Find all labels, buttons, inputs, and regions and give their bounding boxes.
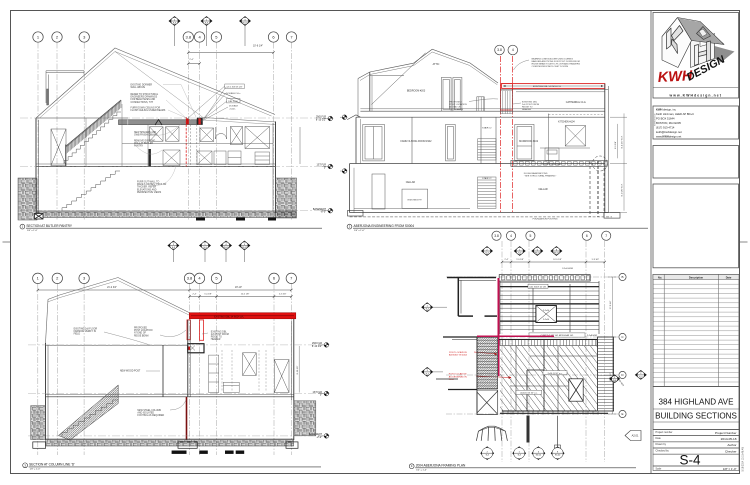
- svg-text:EXISTING F.P.: EXISTING F.P.: [408, 199, 423, 201]
- svg-text:Description: Description: [689, 275, 704, 279]
- svg-text:WALL ABOVE: WALL ABOVE: [131, 86, 146, 89]
- svg-text:ENGINEERS DRAWINGS: ENGINEERS DRAWINGS: [131, 96, 158, 99]
- svg-text:A2.01: A2.01: [632, 434, 639, 438]
- svg-text:EXISTING DBL 14 INCH LVL: EXISTING DBL 14 INCH LVL: [533, 86, 562, 88]
- svg-text:OVER MUDROOM/CLOSET DOORS: OVER MUDROOM/CLOSET DOORS: [532, 66, 569, 68]
- svg-text:S5.02: S5.02: [536, 455, 542, 457]
- svg-text:www.KWHdesign.net: www.KWHdesign.net: [656, 135, 681, 139]
- svg-text:18'-10": 18'-10": [235, 287, 242, 289]
- svg-text:Scale: Scale: [656, 469, 662, 471]
- svg-text:RIDGE BEAM: RIDGE BEAM: [134, 334, 149, 337]
- svg-text:keith@kwhdesign.net: keith@kwhdesign.net: [656, 130, 682, 134]
- svg-text:4: 4: [510, 234, 512, 238]
- svg-text:2-2x8 HDR: 2-2x8 HDR: [562, 268, 573, 270]
- svg-text:5'-3 3/4": 5'-3 3/4": [592, 259, 600, 261]
- svg-text:8'-10 1/2": 8'-10 1/2": [316, 119, 326, 122]
- svg-text:ABERJONA ENGINEERING FROM S000: ABERJONA ENGINEERING FROM S0004: [354, 224, 415, 228]
- svg-text:5'-5 5/8": 5'-5 5/8": [516, 259, 524, 261]
- svg-text:NEW SPACERS AND: NEW SPACERS AND: [134, 131, 157, 134]
- svg-text:Project Number: Project Number: [715, 431, 737, 435]
- svg-text:S5.02: S5.02: [555, 455, 561, 457]
- svg-text:HEADER: HEADER: [522, 108, 532, 111]
- svg-text:8'-1 1/8": 8'-1 1/8": [615, 141, 617, 149]
- svg-text:1/4" = 1'-0": 1/4" = 1'-0": [30, 469, 41, 471]
- svg-text:2-2x10: 2-2x10: [543, 310, 550, 312]
- svg-text:Author: Author: [727, 443, 736, 447]
- svg-text:1/8" = 1'-0": 1/8" = 1'-0": [723, 467, 737, 471]
- svg-text:Drawn by: Drawn by: [656, 443, 667, 446]
- svg-text:5: 5: [529, 234, 531, 238]
- svg-text:3.8: 3.8: [497, 48, 502, 52]
- svg-text:ELEVATIONS AND: ELEVATIONS AND: [137, 188, 157, 191]
- svg-text:AS DESIGNED IN: AS DESIGNED IN: [449, 375, 467, 378]
- svg-text:KITCHEN #104: KITCHEN #104: [558, 121, 575, 124]
- svg-text:8'-0 3/4" V.I.F.: 8'-0 3/4" V.I.F.: [622, 135, 624, 148]
- svg-text:DOUBLE LVLs: DOUBLE LVLs: [226, 93, 241, 95]
- svg-text:3.8: 3.8: [186, 34, 192, 39]
- svg-text:KWH design, inc: KWH design, inc: [656, 108, 677, 112]
- svg-text:STAIR #2: STAIR #2: [482, 177, 492, 180]
- svg-text:3.8: 3.8: [187, 276, 193, 281]
- svg-text:S5.02: S5.02: [535, 252, 541, 254]
- svg-text:ATTIC: ATTIC: [433, 63, 440, 66]
- svg-text:Project number: Project number: [656, 431, 673, 434]
- svg-text:384 HIGHLAND AVE: 384 HIGHLAND AVE: [659, 398, 735, 407]
- svg-text:(2)1 3/4x9 1/2 LVL: (2)1 3/4x9 1/2 LVL: [530, 286, 548, 288]
- svg-text:8'-2 5/8" V.I.F.: 8'-2 5/8" V.I.F.: [622, 183, 624, 196]
- svg-text:2'-4": 2'-4": [505, 259, 509, 261]
- svg-text:MUDROOM #102: MUDROOM #102: [519, 140, 539, 143]
- svg-text:(2)2x10 @ 16" o.c.: (2)2x10 @ 16" o.c.: [520, 392, 538, 394]
- svg-text:5/18/2014 12:15:48 AM: 5/18/2014 12:15:48 AM: [742, 447, 745, 472]
- svg-text:AT END OF: AT END OF: [134, 332, 147, 335]
- svg-text:BUILDING SECTIONS: BUILDING SECTIONS: [655, 411, 737, 420]
- svg-text:DOUBLE: DOUBLE: [229, 106, 239, 108]
- svg-text:REFER TO STRUCTURAL: REFER TO STRUCTURAL: [131, 93, 159, 96]
- svg-text:0": 0": [320, 394, 322, 397]
- svg-text:8'-10 1/2": 8'-10 1/2": [312, 345, 322, 348]
- svg-text:CELLAR: CELLAR: [538, 188, 548, 191]
- svg-text:Checker: Checker: [725, 449, 737, 453]
- svg-text:CONNECTIONS, TYP: CONNECTIONS, TYP: [131, 102, 154, 104]
- svg-text:10'-5 1/8": 10'-5 1/8": [553, 259, 562, 261]
- svg-text:(617) 913-4714: (617) 913-4714: [656, 126, 675, 130]
- svg-text:POST LOCATION: POST LOCATION: [449, 351, 467, 354]
- svg-text:2'-4": 2'-4": [193, 293, 197, 295]
- svg-text:www.KWHdesign.net: www.KWHdesign.net: [669, 93, 722, 97]
- svg-text:FRAMING VERIFY IN: FRAMING VERIFY IN: [74, 330, 97, 333]
- svg-text:-8'-0": -8'-0": [320, 211, 326, 214]
- svg-text:21'-2 3/4": 21'-2 3/4": [107, 287, 117, 289]
- svg-text:AS BUILT IN 2004: AS BUILT IN 2004: [449, 354, 468, 357]
- svg-text:Date: Date: [656, 437, 662, 440]
- svg-text:10'-5 1/8": 10'-5 1/8": [241, 293, 250, 295]
- svg-text:6: 6: [586, 234, 588, 238]
- svg-text:7,8 20D S 16 16T N/A: 7,8 20D S 16 16T N/A: [542, 163, 561, 166]
- svg-text:Checked by: Checked by: [656, 449, 670, 452]
- svg-text:4: 4: [512, 48, 514, 52]
- svg-text:BEDROOM #203: BEDROOM #203: [407, 90, 426, 93]
- svg-text:POST LOCATION: POST LOCATION: [449, 373, 467, 376]
- svg-text:STAIR #2: STAIR #2: [482, 126, 492, 129]
- svg-text:3.8: 3.8: [494, 234, 499, 238]
- svg-text:B: B: [621, 275, 623, 279]
- svg-text:PO BOX 51644: PO BOX 51644: [656, 117, 675, 121]
- svg-text:RIDGE BEAM: RIDGE BEAM: [449, 108, 463, 111]
- svg-text:FOOTING AS REQUIRED: FOOTING AS REQUIRED: [137, 414, 164, 417]
- svg-text:HEADER: HEADER: [211, 338, 221, 341]
- svg-text:8'-10 1/2": 8'-10 1/2": [297, 365, 299, 374]
- svg-text:BOSTON, MA 02205: BOSTON, MA 02205: [656, 121, 681, 125]
- svg-text:7: 7: [605, 234, 607, 238]
- svg-text:5'-3 3/4": 5'-3 3/4": [279, 293, 287, 295]
- svg-text:NEW WOOD POST: NEW WOOD POST: [120, 371, 141, 373]
- svg-text:No.: No.: [658, 275, 662, 279]
- svg-text:SECTION AT BUTLER PANTRY: SECTION AT BUTLER PANTRY: [26, 224, 73, 228]
- svg-text:(2) 1 3/4"x9 1/4": (2) 1 3/4"x9 1/4": [227, 86, 243, 88]
- svg-text:EXISTING DBL 14 INCH LVL: EXISTING DBL 14 INCH LVL: [214, 316, 244, 318]
- svg-text:2-2x8 HDR: 2-2x8 HDR: [587, 335, 598, 337]
- svg-text:2004 ABERJONA FRAMING PLAN: 2004 ABERJONA FRAMING PLAN: [416, 464, 466, 468]
- svg-text:10'-6 1/4": 10'-6 1/4": [253, 44, 263, 47]
- svg-text:5'-5 5/8": 5'-5 5/8": [204, 293, 212, 295]
- svg-text:S5.01: S5.01: [223, 247, 229, 249]
- svg-text:FOR BEAM SIZES AND: FOR BEAM SIZES AND: [131, 98, 156, 101]
- svg-text:2014-05-18: 2014-05-18: [721, 437, 737, 441]
- svg-text:S5.01: S5.01: [242, 247, 248, 249]
- svg-text:PERSPECTIVE VIEWS: PERSPECTIVE VIEWS: [137, 192, 162, 194]
- svg-text:CELLAR: CELLAR: [406, 181, 416, 184]
- svg-text:FIELD: FIELD: [74, 334, 81, 336]
- svg-text:MAKE 6 INCHES THICK OR: MAKE 6 INCHES THICK OR: [137, 183, 167, 186]
- svg-text:2'-4": 2'-4": [189, 59, 194, 61]
- svg-text:1/4" = 1'-0": 1/4" = 1'-0": [27, 230, 38, 232]
- svg-text:2x10s: 2x10s: [230, 108, 237, 110]
- svg-text:DBL 2x10: DBL 2x10: [228, 101, 238, 103]
- svg-text:FLUSH CEILING UNDER BEAMS: FLUSH CEILING UNDER BEAMS: [131, 109, 166, 112]
- svg-text:S5.02: S5.02: [554, 252, 560, 254]
- svg-text:POST LOCATION: POST LOCATION: [134, 329, 153, 332]
- svg-text:0": 0": [324, 167, 326, 170]
- svg-text:1/4" = 1'-0": 1/4" = 1'-0": [354, 230, 365, 232]
- svg-text:~SEE STRUCTURAL FRAMING~: ~SEE STRUCTURAL FRAMING~: [524, 175, 558, 178]
- svg-text:2-2x10: 2-2x10: [543, 319, 550, 321]
- svg-text:S-4: S-4: [679, 452, 701, 467]
- svg-text:E: E: [621, 412, 623, 416]
- svg-text:AND ISOLATED: AND ISOLATED: [137, 412, 154, 415]
- svg-text:FURR OUT WALL TO: FURR OUT WALL TO: [137, 181, 160, 184]
- svg-text:FOUNDATION FOOTING: FOUNDATION FOOTING: [533, 217, 558, 220]
- svg-text:17'-0 3/4": 17'-0 3/4": [610, 300, 612, 309]
- svg-text:PANTRY: PANTRY: [134, 145, 144, 148]
- svg-text:Keith Hinzman, LEED AP BD+C: Keith Hinzman, LEED AP BD+C: [656, 112, 694, 116]
- svg-text:Date: Date: [726, 275, 732, 279]
- svg-text:1/4" = 1'-0": 1/4" = 1'-0": [416, 470, 427, 472]
- svg-text:2x10 @ 16" o.c.: 2x10 @ 16" o.c.: [548, 373, 563, 375]
- svg-text:S5.01: S5.01: [242, 22, 248, 24]
- svg-text:-2'-2": -2'-2": [316, 436, 322, 439]
- svg-text:2004: 2004: [449, 379, 455, 381]
- svg-text:WALL AT BUTLER: WALL AT BUTLER: [134, 142, 153, 145]
- svg-text:SECTION AT COLUMN LINE 'D': SECTION AT COLUMN LINE 'D': [29, 463, 75, 467]
- svg-text:FAMILY/LIVING ROOM #102: FAMILY/LIVING ROOM #102: [401, 140, 433, 143]
- svg-text:CATHEDRAL CLG.: CATHEDRAL CLG.: [566, 101, 587, 104]
